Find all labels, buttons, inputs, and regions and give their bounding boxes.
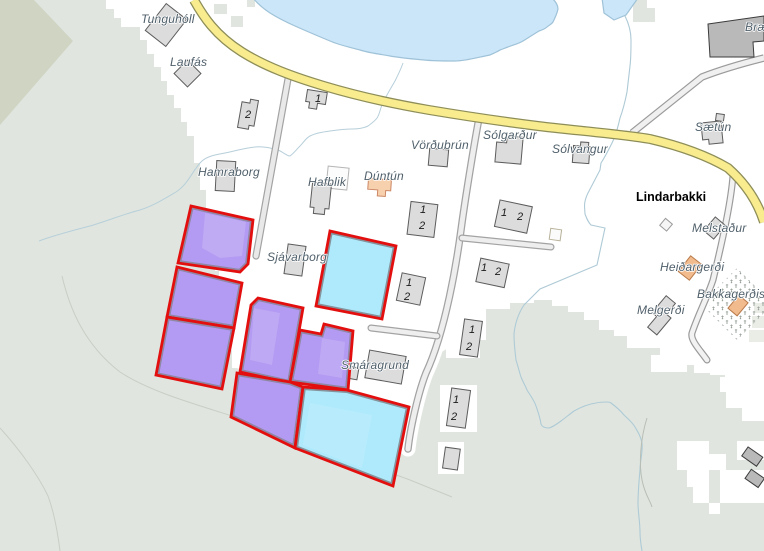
- svg-text:2: 2: [450, 411, 457, 423]
- svg-text:Dúntún: Dúntún: [364, 169, 404, 183]
- svg-text:2: 2: [494, 266, 501, 278]
- svg-text:Smáragrund: Smáragrund: [341, 358, 409, 372]
- svg-text:1: 1: [469, 324, 475, 336]
- svg-text:1: 1: [453, 394, 459, 406]
- svg-text:Hamraborg: Hamraborg: [198, 165, 260, 179]
- svg-text:Laufás: Laufás: [170, 55, 207, 69]
- svg-text:2: 2: [244, 109, 251, 121]
- svg-text:Sætún: Sætún: [695, 120, 731, 134]
- svg-text:2: 2: [418, 220, 425, 232]
- svg-text:1: 1: [481, 262, 487, 274]
- svg-text:2: 2: [465, 341, 472, 353]
- svg-text:1: 1: [315, 93, 321, 105]
- svg-text:1: 1: [501, 207, 507, 219]
- svg-text:Melstaður: Melstaður: [692, 221, 747, 235]
- svg-text:Lindarbakki: Lindarbakki: [636, 190, 706, 204]
- svg-text:Bræ: Bræ: [745, 20, 764, 34]
- svg-text:2: 2: [516, 211, 523, 223]
- svg-text:Bakkagerðiski: Bakkagerðiski: [697, 287, 764, 301]
- svg-text:Sjávarborg: Sjávarborg: [267, 250, 327, 264]
- svg-text:1: 1: [420, 204, 426, 216]
- svg-text:2: 2: [403, 291, 410, 303]
- svg-text:Vörðubrún: Vörðubrún: [411, 138, 469, 152]
- svg-text:Sólgarður: Sólgarður: [483, 128, 538, 142]
- svg-text:Tunguhóll: Tunguhóll: [141, 12, 195, 26]
- svg-text:Sólvangur: Sólvangur: [552, 142, 609, 156]
- svg-text:1: 1: [406, 277, 412, 289]
- svg-text:Heiðargerði: Heiðargerði: [660, 260, 724, 274]
- svg-text:Melgerði: Melgerði: [637, 303, 685, 317]
- svg-text:Hafblik: Hafblik: [308, 175, 347, 189]
